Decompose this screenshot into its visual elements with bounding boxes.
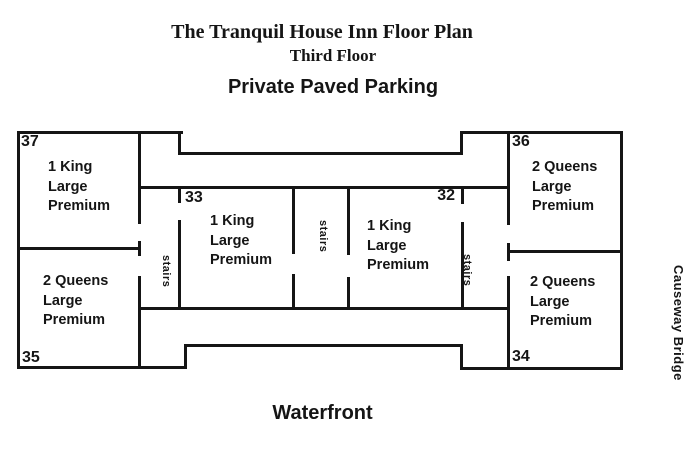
wall [507,250,623,253]
room-line: 1 King [48,158,110,178]
room-number: 34 [512,349,530,365]
room-description: 2 Queens Large Premium [43,272,108,331]
wall [460,344,463,370]
room-number: 37 [21,134,39,150]
room-line: Premium [210,251,272,271]
stairs-label-right: stairs [461,254,473,286]
room-description: 2 Queens Large Premium [532,158,597,217]
waterfront-area-label: Waterfront [0,402,645,425]
room-line: 1 King [210,212,272,232]
wall [17,131,20,369]
room-description: 1 King Large Premium [48,158,110,217]
room-number: 36 [512,134,530,150]
wall [460,367,623,370]
wall [178,131,181,155]
parking-area-label: Private Paved Parking [0,76,666,99]
room-line: Premium [530,312,595,332]
wall [138,276,141,369]
room-line: Premium [367,256,429,276]
wall [347,277,350,310]
room-description: 1 King Large Premium [210,212,272,271]
room-line: 1 King [367,217,429,237]
wall [507,243,510,261]
room-line: 2 Queens [530,273,595,293]
room-line: Large [48,178,110,198]
room-description: 2 Queens Large Premium [530,273,595,332]
room-line: Large [210,232,272,252]
room-line: 2 Queens [532,158,597,178]
wall [138,307,510,310]
room-number: 32 [427,188,455,204]
wall [178,220,181,310]
wall [184,344,187,369]
room-number: 35 [22,350,40,366]
wall [292,186,295,254]
wall [460,131,463,155]
wall [460,131,623,134]
causeway-bridge-label: Causeway Bridge [671,265,686,381]
floor-plan-page: The Tranquil House Inn Floor Plan Third … [0,0,700,461]
wall [184,344,463,347]
wall [138,241,141,256]
wall [507,131,510,225]
wall [178,152,463,155]
wall [347,186,350,255]
wall [138,131,141,224]
page-title: The Tranquil House Inn Floor Plan [0,21,644,44]
room-line: Large [367,237,429,257]
room-line: Premium [532,197,597,217]
room-line: Large [43,292,108,312]
wall [461,186,464,204]
wall [17,247,141,250]
room-line: Premium [43,311,108,331]
wall [507,276,510,370]
wall [178,186,181,203]
stairs-label-left: stairs [160,255,172,287]
wall [17,131,183,134]
wall [17,366,187,369]
wall [292,274,295,310]
wall [620,131,623,370]
room-number: 33 [185,190,203,206]
stairs-label-center: stairs [317,220,329,252]
room-line: Large [532,178,597,198]
floor-subtitle: Third Floor [0,46,666,66]
room-line: Large [530,293,595,313]
room-line: Premium [48,197,110,217]
room-description: 1 King Large Premium [367,217,429,276]
room-line: 2 Queens [43,272,108,292]
